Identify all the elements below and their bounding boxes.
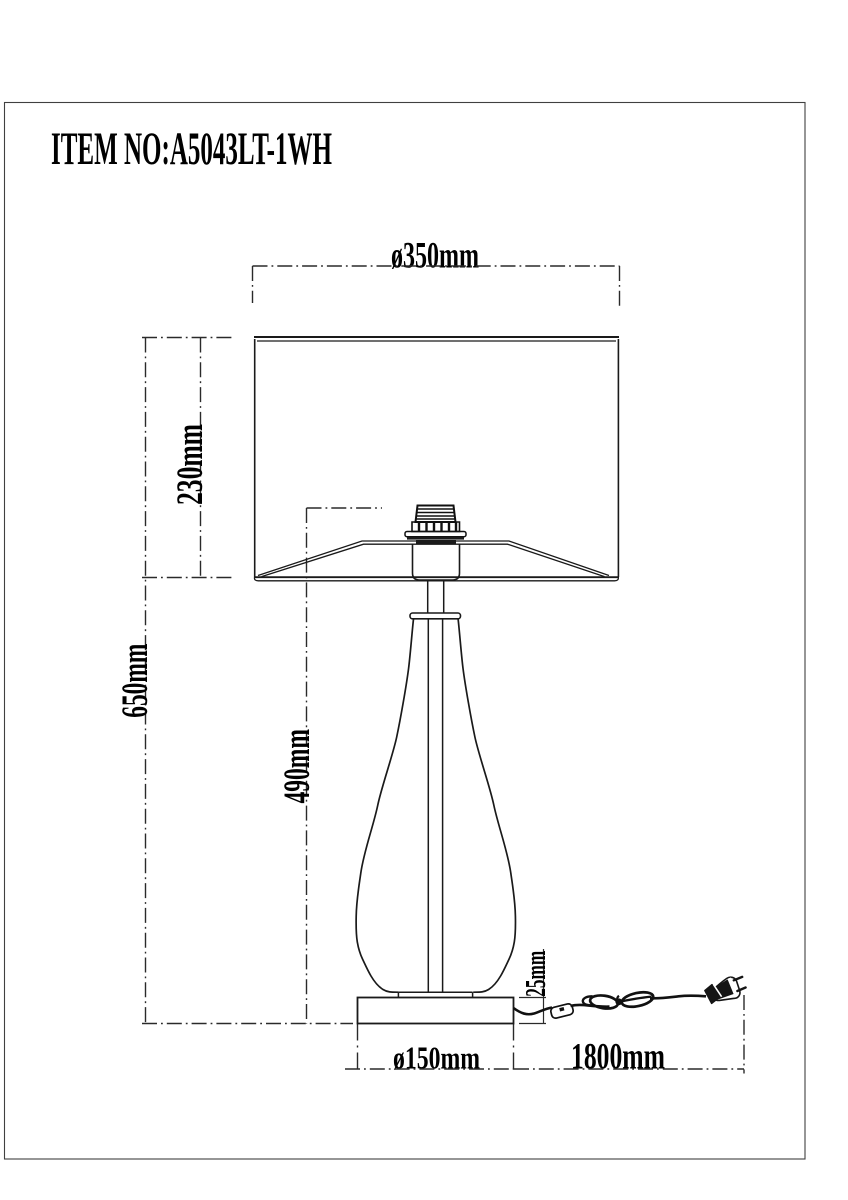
svg-text:25mm: 25mm [521, 951, 552, 997]
svg-text:230mm: 230mm [170, 424, 211, 505]
svg-text:650mm: 650mm [115, 644, 156, 718]
svg-text:1800mm: 1800mm [571, 1037, 665, 1078]
svg-text:ITEM NO:A5043LT-1WH: ITEM NO:A5043LT-1WH [51, 123, 332, 175]
svg-text:ø150mm: ø150mm [393, 1041, 480, 1076]
svg-text:ø350mm: ø350mm [391, 236, 479, 277]
svg-text:490mm: 490mm [277, 729, 318, 804]
